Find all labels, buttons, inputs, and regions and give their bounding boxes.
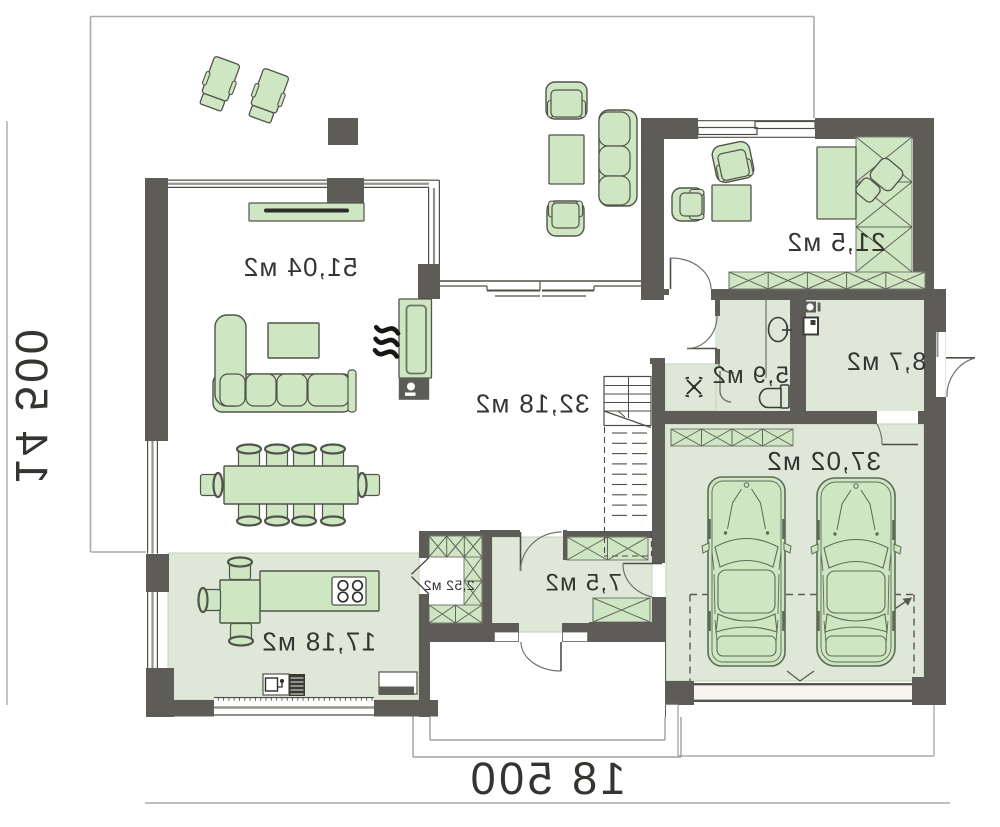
svg-text:5,9 м2: 5,9 м2: [711, 362, 789, 389]
svg-text:14 500: 14 500: [6, 326, 57, 485]
svg-text:2,52 м2: 2,52 м2: [423, 577, 474, 593]
svg-text:51,04 м2: 51,04 м2: [242, 252, 357, 282]
svg-text:37,02 м2: 37,02 м2: [766, 446, 881, 476]
svg-text:7,5 м2: 7,5 м2: [544, 570, 622, 597]
svg-text:21,5 м2: 21,5 м2: [786, 227, 885, 257]
svg-text:8,7 м2: 8,7 м2: [846, 348, 927, 376]
svg-text:18 500: 18 500: [467, 753, 626, 804]
svg-text:32,18 м2: 32,18 м2: [474, 389, 589, 419]
svg-text:17,18 м2: 17,18 м2: [261, 627, 376, 657]
